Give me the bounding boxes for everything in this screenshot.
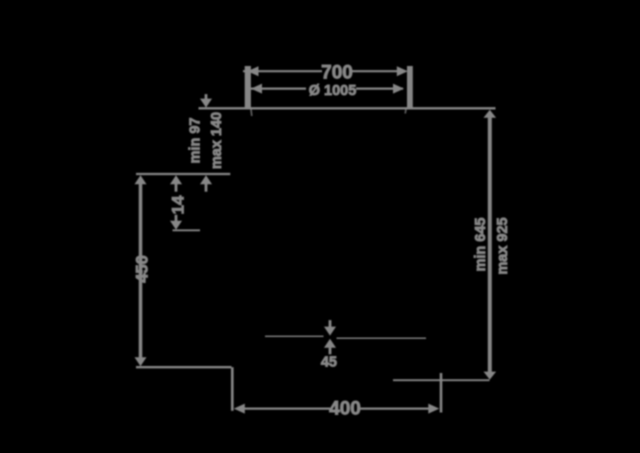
svg-text:min 97: min 97 [188, 118, 204, 164]
svg-text:14: 14 [169, 195, 188, 214]
svg-text:max 140: max 140 [209, 112, 225, 169]
svg-text:min 645: min 645 [473, 218, 489, 272]
svg-text:Ø 1005: Ø 1005 [309, 83, 357, 99]
svg-text:450: 450 [134, 255, 152, 283]
svg-text:700: 700 [321, 63, 353, 84]
svg-text:max 925: max 925 [495, 217, 511, 274]
svg-text:45: 45 [321, 354, 337, 370]
svg-text:400: 400 [329, 398, 361, 419]
